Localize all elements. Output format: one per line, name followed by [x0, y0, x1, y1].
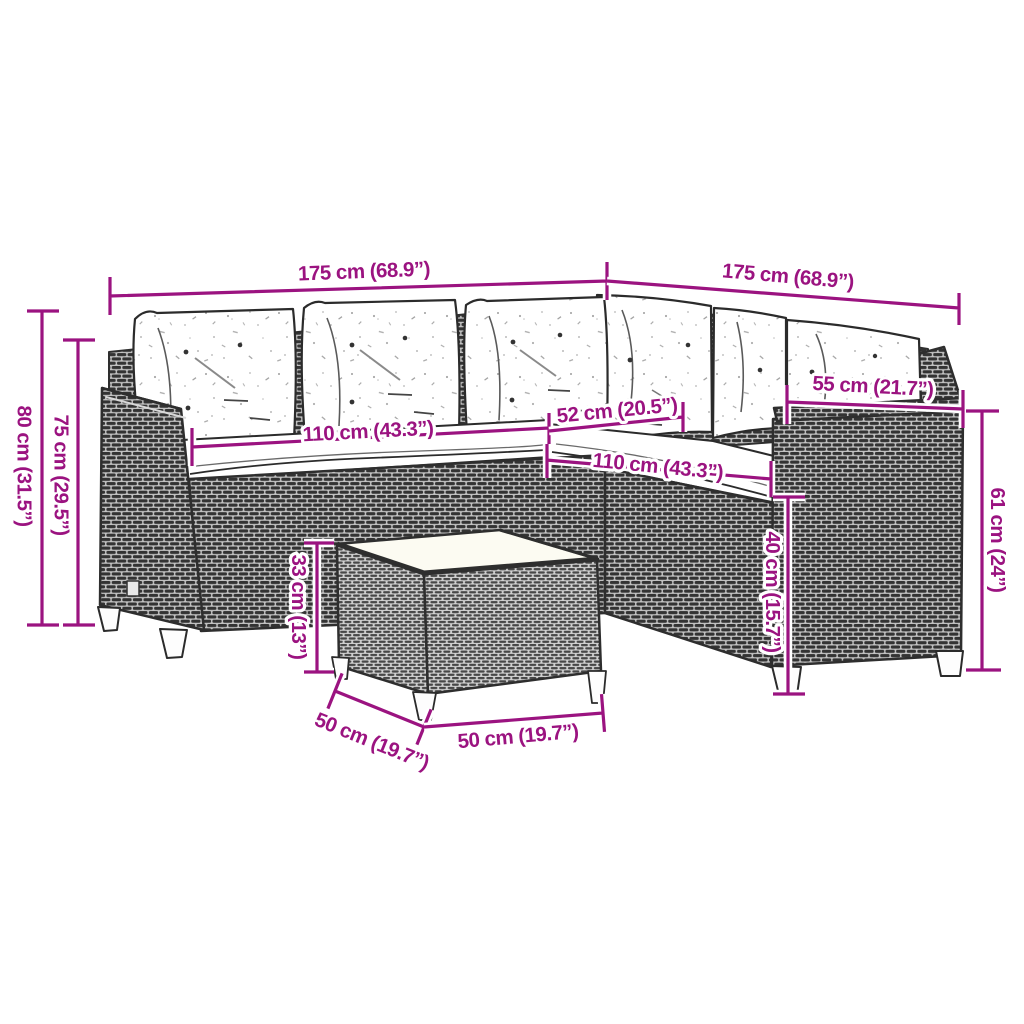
- svg-text:40 cm (15.7”): 40 cm (15.7”): [761, 531, 784, 652]
- svg-text:80 cm (31.5”): 80 cm (31.5”): [13, 405, 36, 526]
- svg-text:33 cm (13”): 33 cm (13”): [287, 554, 310, 659]
- svg-text:61 cm (24”): 61 cm (24”): [986, 487, 1009, 592]
- svg-text:75 cm (29.5”): 75 cm (29.5”): [50, 414, 73, 535]
